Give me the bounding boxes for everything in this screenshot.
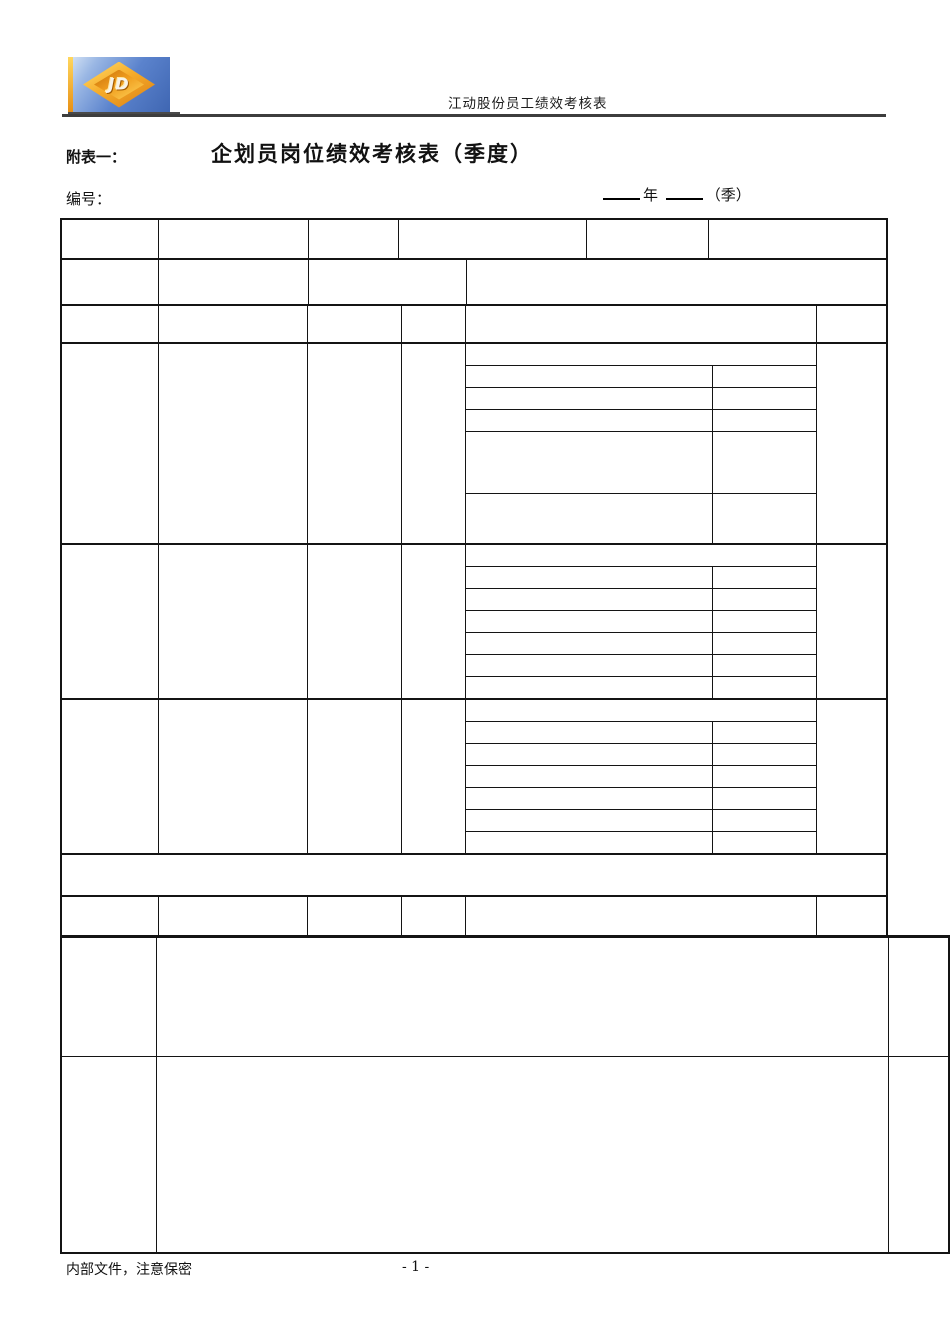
s2-subrow4	[466, 633, 816, 655]
s3-subrow1	[466, 722, 816, 744]
s3-subrow4-score-subcell	[712, 788, 816, 809]
gridhdr2-cell1	[61, 896, 158, 936]
year-blank-field	[603, 184, 640, 200]
info-r1-cell3	[308, 219, 398, 259]
s2-subrow6-score-subcell	[712, 677, 816, 700]
s1-criteria-strip	[466, 344, 816, 366]
summary-r2-content-cell	[156, 1057, 888, 1253]
s2-subrow2	[466, 589, 816, 611]
s2-score-cell	[816, 544, 887, 701]
s3-subrow5	[466, 810, 816, 832]
summary-r1-score-cell	[888, 937, 949, 1057]
s1-cell2	[158, 343, 307, 546]
gridhdr2-cell3	[307, 896, 401, 936]
s3-criteria-cell	[465, 699, 816, 856]
s1-subrow1	[466, 366, 816, 388]
kpi-section-3	[60, 698, 888, 857]
gridhdr2-cell2	[158, 896, 307, 936]
s3-subrow3	[466, 766, 816, 788]
s1-subrow3-score-subcell	[712, 410, 816, 431]
s3-cell2	[158, 699, 307, 856]
gridhdr2-cell6	[816, 896, 887, 936]
info-r1-cell4	[398, 219, 586, 259]
info-r1-cell1	[61, 219, 158, 259]
gridhdr-cell5	[465, 305, 816, 343]
year-season-line: 年 （季）	[600, 184, 751, 205]
s2-subrow4-score-subcell	[712, 633, 816, 654]
s2-cell4	[401, 544, 465, 701]
s3-subrow6-score-subcell	[712, 832, 816, 855]
s2-subrow1	[466, 567, 816, 589]
kpi-section-2	[60, 543, 888, 702]
summary-r2-label-cell	[61, 1057, 156, 1253]
info-r2-cell2	[158, 259, 308, 305]
info-r1-cell5	[586, 219, 708, 259]
s2-subrow5	[466, 655, 816, 677]
s2-subrow3	[466, 611, 816, 633]
s2-subrow1-score-subcell	[712, 567, 816, 588]
s1-subrow2-score-subcell	[712, 388, 816, 409]
s3-cell3	[307, 699, 401, 856]
document-header-title: 江动股份员工绩效考核表	[448, 92, 608, 112]
s2-subrow6	[466, 677, 816, 700]
grid-header-row-2	[60, 895, 888, 937]
s3-cell1	[61, 699, 158, 856]
fullwidth-cell	[61, 854, 887, 896]
info-r2-cell1	[61, 259, 158, 305]
season-blank-field	[666, 184, 703, 200]
summary-r1-label-cell	[61, 937, 156, 1057]
document-page: JD 江动股份员工绩效考核表 附表一： 企划员岗位绩效考核表（季度） 编号： 年…	[0, 0, 950, 1344]
summary-r1-content-cell	[156, 937, 888, 1057]
s3-subrow2	[466, 744, 816, 766]
s1-subrow4-score-subcell	[712, 432, 816, 493]
grid-header-row	[60, 304, 888, 344]
info-r2-cell4	[466, 259, 887, 305]
form-title: 企划员岗位绩效考核表（季度）	[211, 138, 533, 168]
s3-criteria-strip	[466, 700, 816, 722]
fullwidth-row	[60, 853, 888, 897]
gridhdr-cell2	[158, 305, 307, 343]
s3-subrow1-score-subcell	[712, 722, 816, 743]
kpi-section-1	[60, 342, 888, 547]
s2-criteria-cell	[465, 544, 816, 701]
s2-cell3	[307, 544, 401, 701]
summary-r2-score-cell	[888, 1057, 949, 1253]
s1-subrow3	[466, 410, 816, 432]
company-logo: JD	[68, 57, 170, 112]
s3-cell4	[401, 699, 465, 856]
s1-subrow1-score-subcell	[712, 366, 816, 387]
gridhdr-cell6	[816, 305, 887, 343]
s1-subrow2	[466, 388, 816, 410]
s1-subrow5	[466, 494, 816, 545]
s1-subrow4	[466, 432, 816, 494]
gridhdr-cell1	[61, 305, 158, 343]
info-table-row2	[60, 258, 888, 306]
footer-page-number: - 1 -	[402, 1259, 429, 1275]
logo-gold-stripe	[68, 57, 73, 112]
logo-text: JD	[108, 74, 129, 93]
info-table-row1	[60, 218, 888, 260]
s2-criteria-strip	[466, 545, 816, 567]
s3-score-cell	[816, 699, 887, 856]
gridhdr-cell4	[401, 305, 465, 343]
gridhdr-cell3	[307, 305, 401, 343]
gridhdr2-cell5	[465, 896, 816, 936]
s3-subrow2-score-subcell	[712, 744, 816, 765]
info-r2-cell3	[308, 259, 466, 305]
attachment-label: 附表一：	[66, 146, 126, 167]
s2-subrow5-score-subcell	[712, 655, 816, 676]
s2-subrow2-score-subcell	[712, 589, 816, 610]
s1-criteria-cell	[465, 343, 816, 546]
s1-cell3	[307, 343, 401, 546]
year-label: 年	[643, 186, 658, 204]
info-r1-cell6	[708, 219, 887, 259]
s1-cell1	[61, 343, 158, 546]
info-r1-cell2	[158, 219, 308, 259]
header-rule	[62, 114, 886, 117]
s1-subrow5-score-subcell	[712, 494, 816, 545]
s2-cell2	[158, 544, 307, 701]
s3-subrow3-score-subcell	[712, 766, 816, 787]
s3-subrow6	[466, 832, 816, 855]
footer-confidential-note: 内部文件，注意保密	[66, 1259, 192, 1279]
summary-table	[60, 935, 950, 1254]
s3-subrow4	[466, 788, 816, 810]
s3-subrow5-score-subcell	[712, 810, 816, 831]
s2-cell1	[61, 544, 158, 701]
season-label: （季）	[706, 186, 751, 204]
serial-label: 编号：	[66, 188, 111, 209]
s1-cell4	[401, 343, 465, 546]
gridhdr2-cell4	[401, 896, 465, 936]
s1-score-cell	[816, 343, 887, 546]
s2-subrow3-score-subcell	[712, 611, 816, 632]
